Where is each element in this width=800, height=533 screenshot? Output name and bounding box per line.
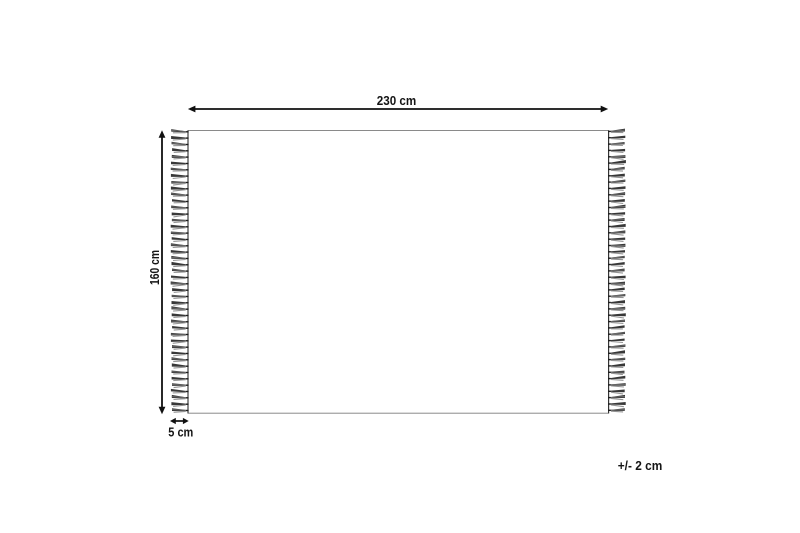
svg-text:230 cm: 230 cm [377,94,417,108]
svg-text:160 cm: 160 cm [148,250,162,285]
svg-text:+/- 2 cm: +/- 2 cm [618,459,663,473]
svg-text:5 cm: 5 cm [168,425,193,439]
